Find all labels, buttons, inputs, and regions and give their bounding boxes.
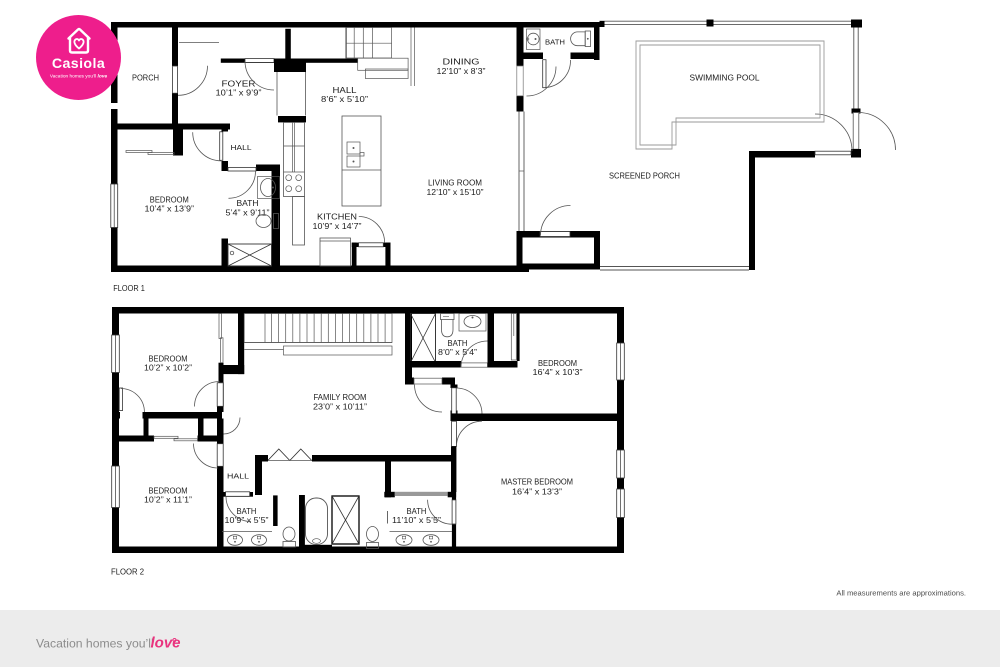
svg-text:KITCHEN: KITCHEN xyxy=(317,213,357,222)
svg-text:10’1” x 9’9”: 10’1” x 9’9” xyxy=(216,89,262,98)
svg-text:LIVING ROOM: LIVING ROOM xyxy=(428,179,482,188)
svg-text:FAMILY ROOM: FAMILY ROOM xyxy=(314,393,367,402)
svg-text:love: love xyxy=(151,635,181,652)
svg-text:11’10” x 5’5”: 11’10” x 5’5” xyxy=(392,516,441,525)
svg-text:BATH: BATH xyxy=(237,507,257,516)
svg-text:16’4” x 10’3”: 16’4” x 10’3” xyxy=(533,368,583,377)
svg-text:Vacation homes you’ll love: Vacation homes you’ll love xyxy=(50,74,108,80)
svg-text:8’6” x 5’10”: 8’6” x 5’10” xyxy=(321,95,368,104)
svg-text:BATH: BATH xyxy=(448,339,468,348)
svg-text:BATH: BATH xyxy=(545,37,565,46)
svg-text:HALL: HALL xyxy=(333,86,358,95)
svg-text:SWIMMING POOL: SWIMMING POOL xyxy=(690,74,761,83)
svg-text:DINING: DINING xyxy=(443,58,480,67)
svg-text:23’0” x 10’11”: 23’0” x 10’11” xyxy=(313,402,367,411)
svg-text:10’9” x 5’5”: 10’9” x 5’5” xyxy=(225,516,269,525)
svg-text:10’4” x 13’9”: 10’4” x 13’9” xyxy=(145,205,195,214)
svg-text:BEDROOM: BEDROOM xyxy=(149,355,188,364)
svg-text:SCREENED PORCH: SCREENED PORCH xyxy=(609,172,680,181)
svg-text:HALL: HALL xyxy=(227,472,249,481)
svg-text:PORCH: PORCH xyxy=(132,74,159,83)
svg-text:10’2” x 10’2”: 10’2” x 10’2” xyxy=(144,364,192,373)
svg-text:All measurements are approxima: All measurements are approximations. xyxy=(836,589,966,598)
svg-text:MASTER BEDROOM: MASTER BEDROOM xyxy=(501,478,573,487)
svg-text:FLOOR 2: FLOOR 2 xyxy=(111,567,144,577)
svg-text:BEDROOM: BEDROOM xyxy=(538,359,577,368)
svg-text:5’4” x 9’11”: 5’4” x 9’11” xyxy=(226,208,270,217)
svg-text:BEDROOM: BEDROOM xyxy=(150,196,189,205)
svg-text:Vacation homes you’ll: Vacation homes you’ll xyxy=(36,637,154,651)
svg-text:16’4” x 13’3”: 16’4” x 13’3” xyxy=(512,487,562,496)
svg-text:BATH: BATH xyxy=(407,507,427,516)
svg-text:Casiola: Casiola xyxy=(52,56,105,72)
svg-text:12’10” x 8’3”: 12’10” x 8’3” xyxy=(437,67,486,76)
svg-text:8’0” x 5’4”: 8’0” x 5’4” xyxy=(438,348,477,357)
svg-text:10’2” x 11’1”: 10’2” x 11’1” xyxy=(144,496,192,505)
svg-text:BATH: BATH xyxy=(237,199,259,208)
svg-text:HALL: HALL xyxy=(231,143,252,152)
svg-text:FLOOR 1: FLOOR 1 xyxy=(113,283,145,293)
svg-text:10’9” x 14’7”: 10’9” x 14’7” xyxy=(313,222,362,231)
svg-text:12’10” x 15’10”: 12’10” x 15’10” xyxy=(427,188,484,197)
svg-text:BEDROOM: BEDROOM xyxy=(149,487,188,496)
svg-text:FOYER: FOYER xyxy=(222,79,256,88)
